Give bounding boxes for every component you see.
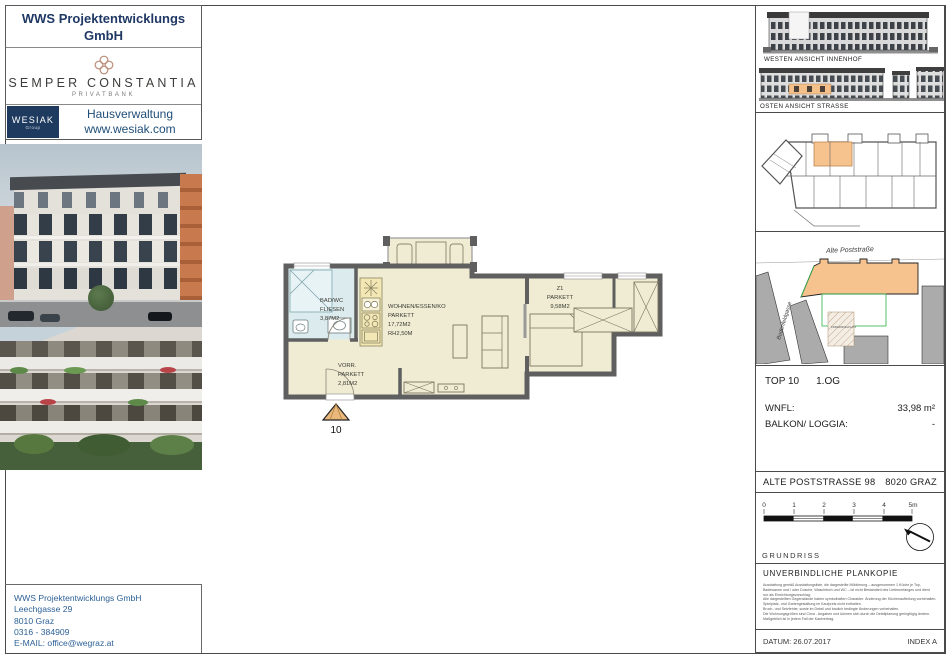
dining-table xyxy=(453,325,467,358)
unit-number-label: 10 xyxy=(330,425,342,436)
site-plan-section: Alte Poststraße KINDERSPIELPLATZ Bodenfe… xyxy=(756,232,944,366)
north-compass-icon xyxy=(904,524,934,551)
west-elevation-label: WESTEN ANSICHT INNENHOF xyxy=(764,56,862,63)
contact-block: WWS Projektentwicklungs GmbH Leechgasse … xyxy=(5,584,202,653)
floor-overview-drawing xyxy=(756,114,944,231)
disclaimer-title: UNVERBINDLICHE PLANKOPIE xyxy=(763,569,937,578)
living-label-3: 17,72M2 xyxy=(388,322,411,328)
contact-city: 8010 Graz xyxy=(14,616,201,627)
bench xyxy=(438,384,464,392)
wnfl-label: WNFL: xyxy=(765,403,795,414)
shower xyxy=(290,270,332,312)
wws-title-line2: GmbH xyxy=(84,27,123,44)
living-label-1: WOHNEN/ESSEN/KO xyxy=(388,304,446,310)
wesiak-logo-text: WESIAK xyxy=(12,115,54,125)
balcony-value: - xyxy=(932,419,935,430)
wesiak-service: Hausverwaltung xyxy=(59,107,201,122)
building-photo-rendering xyxy=(0,144,202,327)
sideboard xyxy=(404,382,434,393)
balcony-table xyxy=(416,242,446,266)
wesiak-logo-subtext: Group xyxy=(25,125,40,130)
scale-section: 0 1 2 3 4 5m xyxy=(756,493,944,564)
sink xyxy=(362,298,380,311)
west-elevation-drawing xyxy=(763,9,938,55)
hall-label-1: VORR. xyxy=(338,363,357,369)
wesiak-website: www.wesiak.com xyxy=(59,122,201,137)
disclaimer-section: UNVERBINDLICHE PLANKOPIE Ausstattung gem… xyxy=(756,564,944,630)
site-plan-drawing: Alte Poststraße KINDERSPIELPLATZ Bodenfe… xyxy=(756,232,944,364)
scale-tick-3: 3 xyxy=(852,502,856,509)
entrance-arrow xyxy=(323,404,349,420)
hall-label-3: 2,81M2 xyxy=(338,381,357,387)
balcony-label: BALKON/ LOGGIA: xyxy=(765,419,848,430)
east-elevation-drawing xyxy=(759,64,944,104)
scale-tick-1: 1 xyxy=(792,502,796,509)
wesiak-logo-row: WESIAK Group Hausverwaltung www.wesiak.c… xyxy=(6,105,201,139)
disclaimer-line: Badewanne und / oder Dusche, Waschtisch … xyxy=(763,588,937,593)
drawing-type-label: GRUNDRISS xyxy=(762,551,821,560)
unit-floor-label: 1.OG xyxy=(816,376,840,387)
bath-label-2: FLIESEN xyxy=(320,307,344,313)
semper-subtitle: PRIVATBANK xyxy=(72,92,135,98)
scale-tick-4: 4 xyxy=(882,502,886,509)
wws-title-line1: WWS Projektentwicklungs xyxy=(22,10,185,27)
disclaimer-line: Die Wohnungsgrößen sind Circa - Angaben … xyxy=(763,612,937,617)
elevations-section: WESTEN ANSICHT INNENHOF OSTEN ANSICHT ST… xyxy=(756,6,944,113)
scale-bar: 0 1 2 3 4 5m xyxy=(760,497,944,561)
hall-label-2: PARKETT xyxy=(338,372,365,378)
contact-street: Leechgasse 29 xyxy=(14,604,201,615)
semper-name: SEMPER CONSTANTIA xyxy=(8,76,198,90)
unit-info-section: TOP 10 1.OG WNFL: 33,98 m² BALKON/ LOGGI… xyxy=(756,366,944,472)
toilet xyxy=(293,320,308,333)
semper-knot-icon xyxy=(94,55,114,75)
scale-tick-2: 2 xyxy=(822,502,826,509)
contact-email: E-MAIL: office@wegraz.at xyxy=(14,638,201,649)
neighbor-building xyxy=(922,286,944,364)
living-label-2: PARKETT xyxy=(388,313,415,319)
plan-sheet: WWS Projektentwicklungs GmbH SEMPER CONS… xyxy=(0,0,950,658)
scale-tick-0: 0 xyxy=(762,502,766,509)
project-street: ALTE POSTSTRASSE 98 xyxy=(763,477,875,487)
contact-company: WWS Projektentwicklungs GmbH xyxy=(14,593,201,604)
bath-label-1: BAD/WC xyxy=(320,298,343,304)
contact-phone: 0316 - 384909 xyxy=(14,627,201,638)
unit-top-label: TOP 10 xyxy=(765,376,799,387)
project-address-row: ALTE POSTSTRASSE 98 8020 GRAZ xyxy=(756,472,944,493)
floor-plan-drawing: BAD/WC FLIESEN 3,87M2 xyxy=(270,228,680,443)
floor-overview-section xyxy=(756,113,944,232)
wnfl-value: 33,98 m² xyxy=(898,403,936,414)
room1-label-1: Z1 xyxy=(557,286,564,292)
title-block-footer: DATUM: 26.07.2017 INDEX A xyxy=(756,630,944,652)
site-building-footprint xyxy=(801,259,918,297)
highlighted-unit xyxy=(814,142,852,166)
project-city: 8020 GRAZ xyxy=(885,477,937,487)
east-elevation-label: OSTEN ANSICHT STRASSE xyxy=(760,103,849,110)
room1-label-3: 9,58M2 xyxy=(550,304,569,310)
living-label-4: RH2,50M xyxy=(388,331,413,337)
title-block-panel: WESTEN ANSICHT INNENHOF OSTEN ANSICHT ST… xyxy=(755,5,945,653)
semper-constantia-logo: SEMPER CONSTANTIA PRIVATBANK xyxy=(6,48,201,105)
letterhead: WWS Projektentwicklungs GmbH SEMPER CONS… xyxy=(5,5,202,140)
room1-label-2: PARKETT xyxy=(547,295,574,301)
wesiak-logo: WESIAK Group xyxy=(7,106,59,138)
index-label: INDEX A xyxy=(907,637,937,646)
playground-label: KINDERSPIELPLATZ xyxy=(831,325,856,329)
bathroom: BAD/WC FLIESEN 3,87M2 xyxy=(289,269,355,340)
building-photo-balconies xyxy=(0,327,202,470)
date-label: DATUM: 26.07.2017 xyxy=(763,637,831,646)
playground-area xyxy=(828,312,854,346)
scale-tick-5: 5m xyxy=(908,502,917,509)
street-top-label: Alte Poststraße xyxy=(825,246,874,255)
disclaimer-line: Maßgeblich ist in jedem Fall der Kaufver… xyxy=(763,617,937,622)
sofa xyxy=(482,316,508,368)
kitchen-unit xyxy=(360,278,382,346)
wws-logo: WWS Projektentwicklungs GmbH xyxy=(6,6,201,48)
bath-label-3: 3,87M2 xyxy=(320,316,339,322)
wesiak-text: Hausverwaltung www.wesiak.com xyxy=(59,107,201,137)
